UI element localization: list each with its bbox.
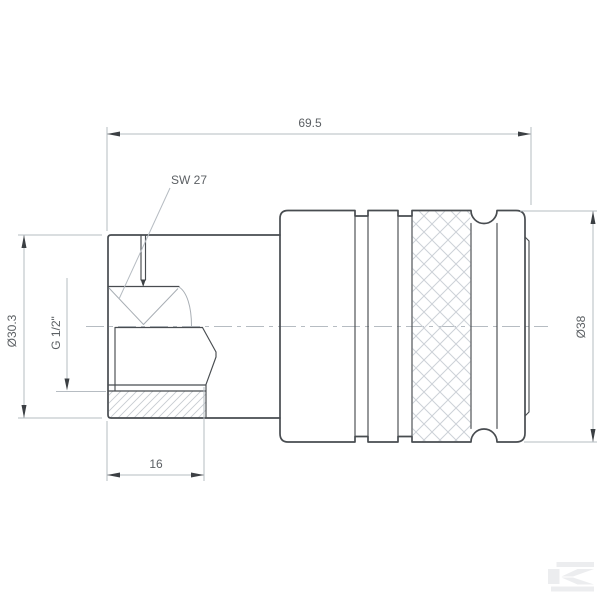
section-hatch <box>109 392 206 418</box>
nut-diameter-text: Ø30.3 <box>5 314 19 347</box>
body-diameter-text: Ø38 <box>574 315 588 338</box>
drawing-svg: 69.5 Ø30.3 Ø38 16 SW 27 G 1/2" <box>0 0 600 600</box>
watermark-k-logo <box>548 562 594 592</box>
overall-length-text: 69.5 <box>298 116 322 130</box>
dimension-body-diameter: Ø38 <box>520 211 597 442</box>
label-wrench-size: SW 27 <box>119 173 207 299</box>
knurl-texture <box>413 211 471 441</box>
wrench-size-text: SW 27 <box>171 173 207 187</box>
thread-size-text: G 1/2" <box>49 316 63 350</box>
thread-length-text: 16 <box>149 457 163 471</box>
technical-drawing-canvas: 69.5 Ø30.3 Ø38 16 SW 27 G 1/2" <box>0 0 600 600</box>
label-thread-size: G 1/2" <box>49 278 106 392</box>
